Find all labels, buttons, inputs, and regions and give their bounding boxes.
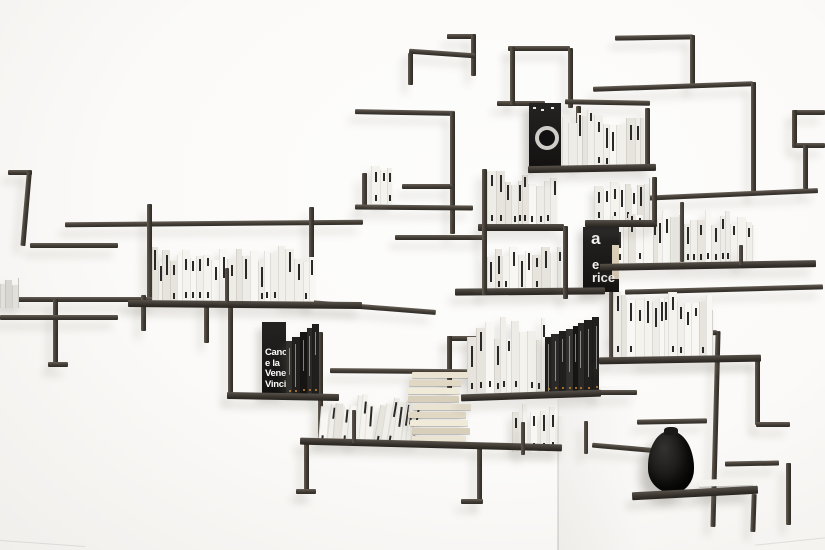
shelf-rod: [128, 300, 362, 309]
book-group-left-shelf: [152, 246, 314, 302]
metal-rod: [795, 110, 825, 115]
metal-rod: [637, 418, 707, 424]
metal-rod: [20, 170, 32, 246]
metal-rod: [652, 177, 657, 222]
metal-rod: [304, 443, 309, 493]
book-stop-pin: [584, 421, 588, 454]
canova-book-cover: Canov e la Vener Vincit: [262, 322, 286, 395]
book-stop-pin: [225, 268, 229, 303]
metal-rod: [563, 226, 568, 299]
shelf-rod: [599, 355, 761, 365]
metal-rod: [756, 422, 790, 427]
metal-rod: [750, 494, 756, 532]
book-group-right-mid: [613, 291, 713, 357]
metal-rod: [645, 108, 650, 166]
book-stop-pin: [521, 422, 525, 455]
metal-rod: [402, 184, 452, 189]
metal-rod: [803, 145, 808, 189]
metal-rod: [0, 315, 118, 320]
book-group-center-mid: [487, 243, 561, 290]
book-group-small-stack: [371, 162, 392, 204]
floor-edge-right: [755, 537, 825, 545]
shelf-rod: [227, 392, 339, 401]
metal-rod: [296, 489, 316, 494]
metal-rod: [450, 112, 455, 234]
bookshelf-photo: a e rice Canov e la Vener Vincit: [0, 0, 825, 550]
metal-rod: [565, 99, 650, 105]
shelf-rod: [478, 224, 564, 231]
book-group-center-lower-white: [467, 317, 545, 393]
record-label-ring: [535, 126, 559, 150]
shelf-rod: [455, 287, 605, 295]
book-stop-pin: [352, 410, 356, 443]
black-vase: [648, 431, 694, 493]
metal-rod: [395, 235, 487, 240]
book-group-canova-spines: [286, 318, 336, 395]
metal-rod: [690, 35, 695, 87]
metal-rod: [53, 299, 58, 363]
record-box: [529, 103, 561, 167]
metal-rod: [796, 143, 825, 148]
display-book-letter: a: [591, 229, 600, 249]
metal-rod: [615, 34, 693, 40]
metal-rod: [482, 169, 487, 295]
display-book-letter: rice: [592, 270, 615, 285]
metal-rod: [355, 109, 455, 116]
metal-rod: [477, 445, 482, 503]
metal-rod: [362, 173, 367, 207]
metal-rod: [409, 49, 475, 59]
metal-rod: [640, 188, 818, 201]
canova-title: Canov e la Vener Vincit: [262, 322, 286, 393]
metal-rod: [30, 243, 118, 248]
metal-rod: [595, 390, 637, 395]
metal-rod: [510, 47, 515, 105]
book-group-flat-stack: [406, 368, 466, 442]
record-box-marking: [551, 107, 554, 109]
metal-rod: [408, 53, 413, 85]
shelf-rod: [585, 220, 657, 227]
book-stop-pin: [680, 202, 684, 262]
book-group-center-lower-dark: [545, 313, 599, 393]
metal-rod: [786, 463, 791, 525]
metal-rod: [508, 46, 570, 51]
book-group-top-row: [562, 107, 644, 167]
metal-rod: [48, 362, 68, 367]
metal-rod: [755, 357, 760, 425]
book-stop-pin: [739, 245, 743, 265]
metal-rod: [461, 499, 483, 504]
metal-rod: [751, 82, 756, 194]
metal-rod: [593, 81, 753, 92]
metal-rod: [355, 204, 473, 210]
black-display-book: a e rice: [583, 227, 619, 292]
shelf-rod: [528, 164, 656, 173]
book-group-center-upper-left: [487, 169, 557, 225]
record-box-marking: [533, 107, 536, 109]
metal-rod: [65, 220, 363, 228]
book-group-left-edge: [0, 276, 19, 308]
record-box-marking: [541, 109, 544, 111]
metal-rod: [725, 461, 779, 467]
floor-edge-left: [0, 540, 85, 547]
